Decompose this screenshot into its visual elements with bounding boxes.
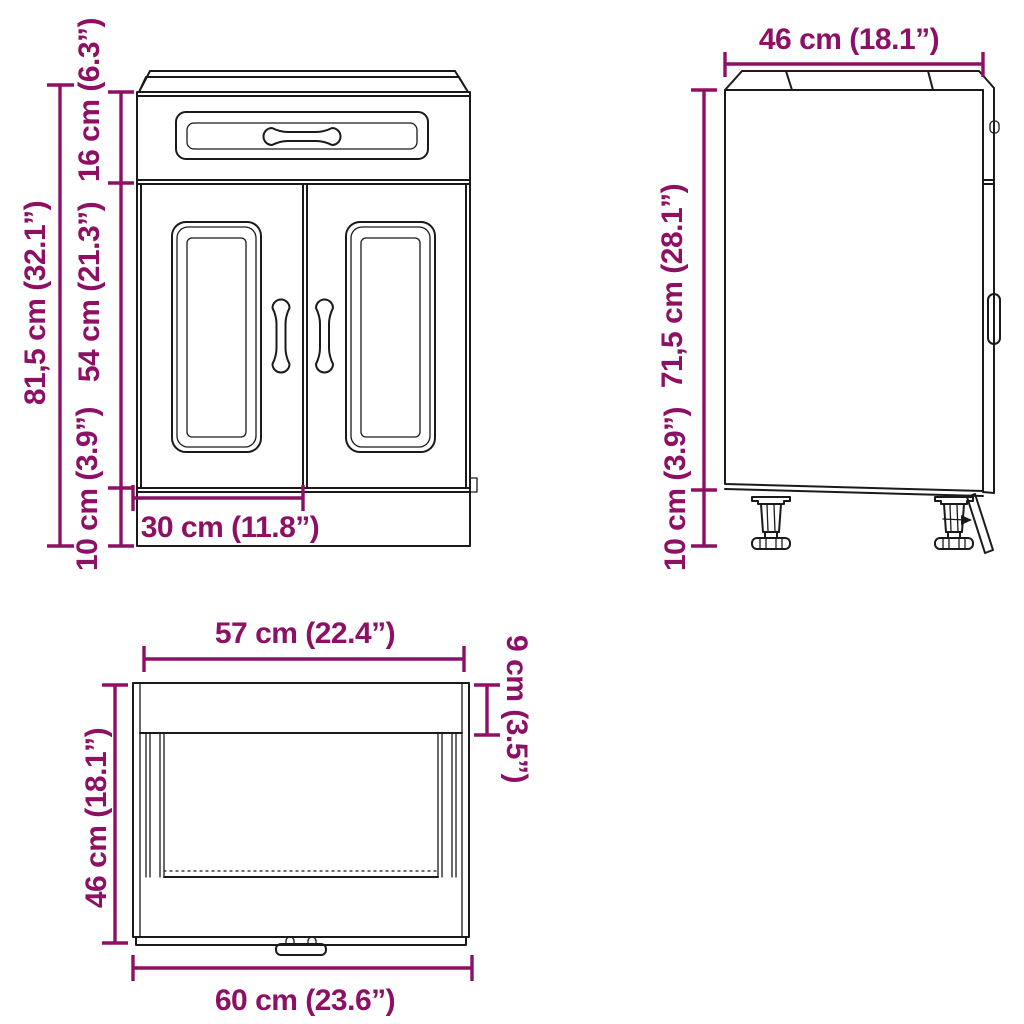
countertop	[139, 71, 468, 92]
dim-front-plinth-height: 10 cm (3.9”)	[73, 407, 103, 571]
top-handle-posts	[286, 937, 316, 944]
dim-side-carcass-height: 71,5 cm (28.1”)	[658, 184, 688, 388]
right-door-panel-inner	[361, 238, 420, 437]
side-panel-stripes	[146, 733, 456, 877]
rear-leg-stem-hatch	[950, 505, 958, 531]
dim-side-depth: 46 cm (18.1”)	[759, 25, 939, 55]
left-door-panel-inner	[187, 238, 246, 437]
rear-foot-base	[935, 538, 973, 549]
side-front-strip	[983, 88, 994, 493]
front-foot-base	[752, 538, 790, 549]
dimline-front-segments	[108, 92, 134, 546]
dim-front-drawer-height: 16 cm (6.3”)	[75, 18, 105, 182]
drawer-front-inner	[187, 123, 417, 149]
plinth-clip-arrow	[961, 515, 972, 525]
dim-top-front-width: 57 cm (22.4”)	[215, 619, 395, 649]
dim-side-leg-height: 10 cm (3.9”)	[661, 407, 691, 571]
drawer-handle	[264, 128, 341, 145]
top-outline	[133, 683, 469, 937]
left-door-panel-mid	[177, 227, 256, 447]
front-foot-hatch	[760, 538, 782, 549]
front-leg-stem	[761, 504, 781, 532]
dim-top-back-inset: 9 cm (3.5”)	[501, 635, 531, 783]
front-right-notch	[470, 478, 477, 492]
dimline-top-total-width	[133, 955, 472, 981]
front-view-drawing	[137, 71, 477, 546]
dim-top-depth: 46 cm (18.1”)	[82, 728, 112, 908]
door-gap	[141, 184, 466, 488]
front-leg-bracket	[752, 497, 790, 504]
rear-foot-hatch	[943, 538, 965, 549]
dim-front-door-width: 30 cm (11.8”)	[141, 513, 320, 543]
dim-front-door-height: 54 cm (21.3”)	[75, 202, 105, 382]
left-door-panel-outer	[172, 222, 261, 452]
dimline-side-heights	[691, 90, 717, 546]
dimline-top-back-inset	[474, 685, 500, 735]
right-door-handle	[316, 300, 333, 373]
dimension-diagram: 81,5 cm (32.1”) 16 cm (6.3”) 54 cm (21.3…	[0, 0, 1024, 1024]
top-view-drawing	[133, 683, 469, 955]
dim-front-total-height: 81,5 cm (32.1”)	[21, 201, 51, 405]
right-door-panel-outer	[346, 222, 435, 452]
drawer-front-outer	[176, 112, 428, 159]
side-top-face	[725, 71, 994, 90]
right-door-panel-mid	[351, 227, 430, 447]
top-inner-edges	[140, 684, 462, 936]
side-view-drawing	[725, 71, 1000, 553]
front-leg-stem-hatch	[767, 505, 775, 531]
toe-kick-plank	[967, 494, 993, 553]
dim-top-total-width: 60 cm (23.6”)	[215, 986, 395, 1016]
side-carcass	[725, 90, 983, 496]
left-door-handle	[273, 300, 290, 373]
